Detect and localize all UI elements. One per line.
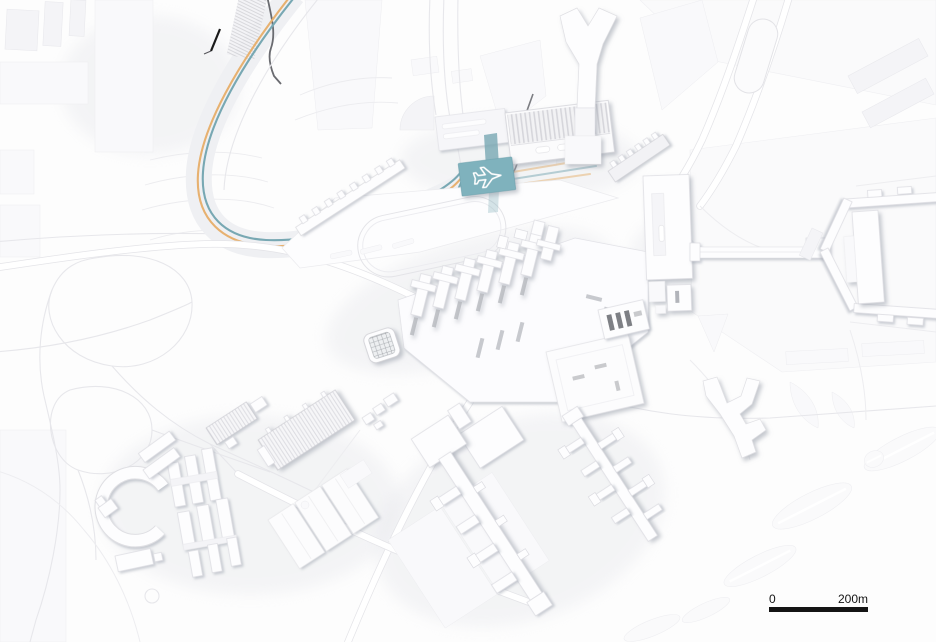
airport-station-marker — [458, 157, 516, 196]
site-plan-map: 0 200m — [0, 0, 936, 642]
office-slab-east — [643, 174, 694, 314]
scale-label-end: 200m — [838, 592, 868, 606]
site-plan-canvas: 0 200m — [0, 0, 936, 642]
station-box — [458, 157, 516, 196]
scale-bar-line — [769, 607, 868, 612]
scale-label-start: 0 — [769, 592, 776, 606]
